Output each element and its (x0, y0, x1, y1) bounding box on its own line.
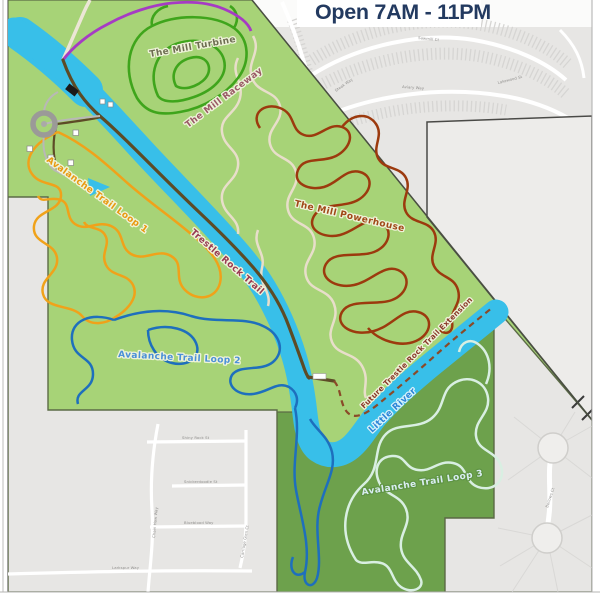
street-label: Larkspur Way (112, 565, 140, 570)
facility-icon (27, 146, 33, 152)
street (150, 526, 246, 527)
facility-icon (100, 99, 105, 104)
roundabout-center (41, 121, 47, 127)
street (147, 441, 246, 442)
bridge-label-box (313, 374, 326, 380)
facility-icon (73, 130, 79, 136)
cul-de-sac-circle (532, 523, 562, 553)
street-label: Shiny Rock St (182, 435, 210, 440)
street-label: Snickerdoodle St (184, 479, 218, 484)
facility-icon (68, 160, 74, 166)
street-label: Blueblood Way (184, 520, 214, 525)
page-title: Open 7AM - 11PM (315, 0, 491, 24)
frame-left (0, 0, 8, 600)
trail-map-image: Sawmill Ct Aviary Way Lakewood St Steak … (0, 0, 600, 600)
frame-bottom (0, 592, 600, 600)
cul-de-sac-circle (538, 433, 568, 463)
frame-right (592, 0, 600, 600)
street (172, 485, 246, 486)
trail-map-canvas: Sawmill Ct Aviary Way Lakewood St Steak … (0, 0, 600, 600)
facility-icon (108, 102, 113, 107)
